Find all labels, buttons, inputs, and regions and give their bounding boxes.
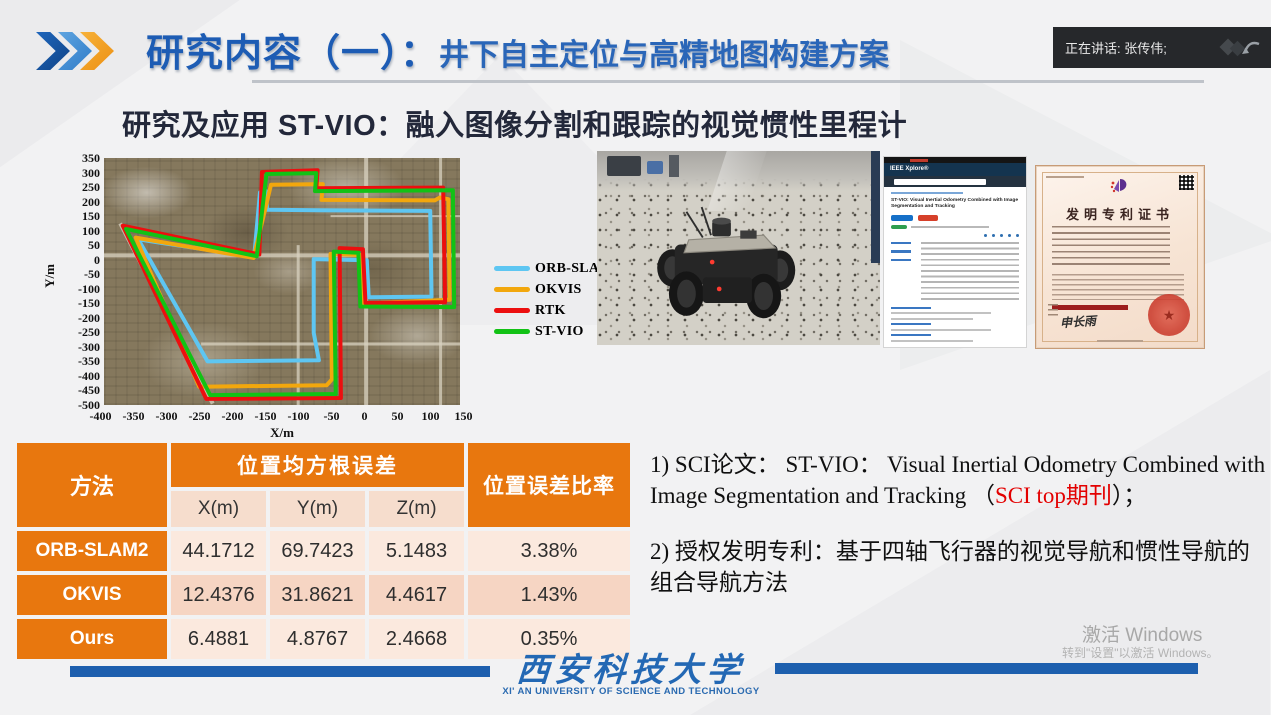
cnipa-logo xyxy=(1108,177,1132,199)
table-cell: 12.4376 xyxy=(171,575,266,615)
photo-dark-pillar xyxy=(871,151,880,263)
photo-post-shape xyxy=(669,155,679,177)
certificate-red-seal: ★ xyxy=(1148,294,1190,336)
rmse-results-table: 方法 位置均方根误差 位置误差比率 X(m) Y(m) Z(m) ORB-SLA… xyxy=(17,443,630,659)
meeting-overlay-icons[interactable] xyxy=(1217,34,1263,62)
legend-swatch-orbslam2 xyxy=(494,266,530,271)
x-axis-ticks: -400-350-300-250-200-150-100-50050100150 xyxy=(84,409,480,423)
meeting-speaker-toast: 正在讲话: 张传伟; xyxy=(1053,27,1271,68)
paper-abstract-lines xyxy=(921,242,1019,302)
certificate-field-lines xyxy=(1052,226,1170,268)
y-axis-ticks: 350300250200150100500-50-100-150-200-250… xyxy=(58,151,100,412)
triple-chevron-icon xyxy=(36,32,102,70)
achievement-item-2: 2) 授权发明专利：基于四轴飞行器的视觉导航和惯性导航的组合导航方法 xyxy=(650,537,1268,598)
certificate-highlight-bar xyxy=(1052,305,1128,310)
photo-machine-shape xyxy=(607,156,641,176)
paper-search-bar xyxy=(884,176,1026,187)
certificate-signer-label xyxy=(1048,304,1058,318)
table-header-rmse: 位置均方根误差 xyxy=(171,443,464,487)
table-cell: 4.8767 xyxy=(270,619,365,659)
table-row-label: OKVIS xyxy=(17,575,167,615)
table-subheader-x: X(m) xyxy=(171,491,266,527)
table-cell: 5.1483 xyxy=(369,531,464,571)
paper-top-menubar xyxy=(884,157,1026,163)
legend-swatch-stvio xyxy=(494,329,530,334)
university-logo-chinese: 西安科技大学 xyxy=(484,643,777,691)
paper-action-icons xyxy=(891,234,1019,237)
ieee-paper-screenshot: IEEE Xplore® ST-VIO: Visual Inertial Odo… xyxy=(884,157,1026,347)
table-cell: 6.4881 xyxy=(171,619,266,659)
windows-activation-watermark-line2: 转到"设置"以激活 Windows。 xyxy=(1062,644,1219,661)
access-button-shape xyxy=(918,215,938,221)
table-cell: 1.43% xyxy=(468,575,630,615)
table-cell: 31.8621 xyxy=(270,575,365,615)
footer-bar-left xyxy=(70,666,490,677)
paper-side-links xyxy=(891,242,915,302)
section-subtitle: 研究及应用 ST-VIO：融入图像分割和跟踪的视觉惯性里程计 xyxy=(122,102,907,144)
paper-abstract-section xyxy=(891,242,1019,302)
speaker-label: 正在讲话: 张传伟; xyxy=(1053,38,1217,57)
paper-page-body: ST-VIO: Visual Inertial Odometry Combine… xyxy=(884,187,1026,347)
paper-metadata-section xyxy=(891,307,1019,342)
table-subheader-z: Z(m) xyxy=(369,491,464,527)
certificate-footer-line xyxy=(1097,340,1143,342)
photo-bin-shape xyxy=(647,161,663,174)
pdf-button-shape xyxy=(891,215,913,221)
map-roads xyxy=(104,158,460,405)
achievement-1-suffix: ）； xyxy=(1112,483,1147,508)
y-axis-label: Y/m xyxy=(42,254,58,298)
slide-title-sub: 井下自主定位与高精地图构建方案 xyxy=(439,30,889,77)
legend-label: OKVIS xyxy=(535,282,582,298)
achievement-1-text: 1) SCI论文： ST-VIO： Visual Inertial Odomet… xyxy=(650,452,1265,508)
legend-label: ST-VIO xyxy=(535,324,584,340)
x-axis-label: X/m xyxy=(104,425,460,441)
trajectory-map-plot xyxy=(104,158,460,405)
windows-activation-watermark-line1: 激活 Windows xyxy=(1082,620,1202,647)
legend-swatch-rtk xyxy=(494,308,530,313)
trajectory-lines xyxy=(104,158,460,405)
slide-title: 研究内容（一）： 井下自主定位与高精地图构建方案 xyxy=(146,22,889,77)
achievement-1-highlight: SCI top期刊 xyxy=(995,483,1112,508)
paper-breadcrumb-line xyxy=(891,192,963,194)
table-cell: 44.1712 xyxy=(171,531,266,571)
robot-photo xyxy=(597,151,880,345)
table-row-label: ORB-SLAM2 xyxy=(17,531,167,571)
table-cell: 3.38% xyxy=(468,531,630,571)
table-header-error-ratio: 位置误差比率 xyxy=(468,443,630,527)
table-cell: 69.7423 xyxy=(270,531,365,571)
slide-title-main: 研究内容（一）： xyxy=(146,22,439,77)
table-row-label: Ours xyxy=(17,619,167,659)
table-cell: 2.4668 xyxy=(369,619,464,659)
university-logo-english: XI' AN UNIVERSITY OF SCIENCE AND TECHNOL… xyxy=(466,686,796,697)
paper-title: ST-VIO: Visual Inertial Odometry Combine… xyxy=(891,198,1019,211)
achievement-item-1: 1) SCI论文： ST-VIO： Visual Inertial Odomet… xyxy=(650,450,1268,511)
wheeled-robot-illustration xyxy=(642,186,817,333)
paper-site-brand: IEEE Xplore® xyxy=(884,163,1026,176)
legend-swatch-okvis xyxy=(494,287,530,292)
table-header-method: 方法 xyxy=(17,443,167,527)
table-subheader-y: Y(m) xyxy=(270,491,365,527)
achievements-text: 1) SCI论文： ST-VIO： Visual Inertial Odomet… xyxy=(650,450,1268,598)
paper-buttons xyxy=(891,215,1019,221)
table-cell: 4.4617 xyxy=(369,575,464,615)
legend-label: RTK xyxy=(535,303,566,319)
patent-certificate: 发明专利证书 申长雨 ★ xyxy=(1035,165,1205,349)
certificate-number-line xyxy=(1046,176,1084,178)
paper-open-access-badge xyxy=(891,225,1019,229)
diamonds-and-reply-arrow-icon[interactable] xyxy=(1217,34,1263,62)
certificate-qr-code xyxy=(1179,175,1194,190)
title-divider xyxy=(252,80,1204,83)
certificate-title: 发明专利证书 xyxy=(1036,204,1204,223)
certificate-signature: 申长雨 xyxy=(1059,312,1096,331)
footer-bar-right xyxy=(775,663,1198,674)
